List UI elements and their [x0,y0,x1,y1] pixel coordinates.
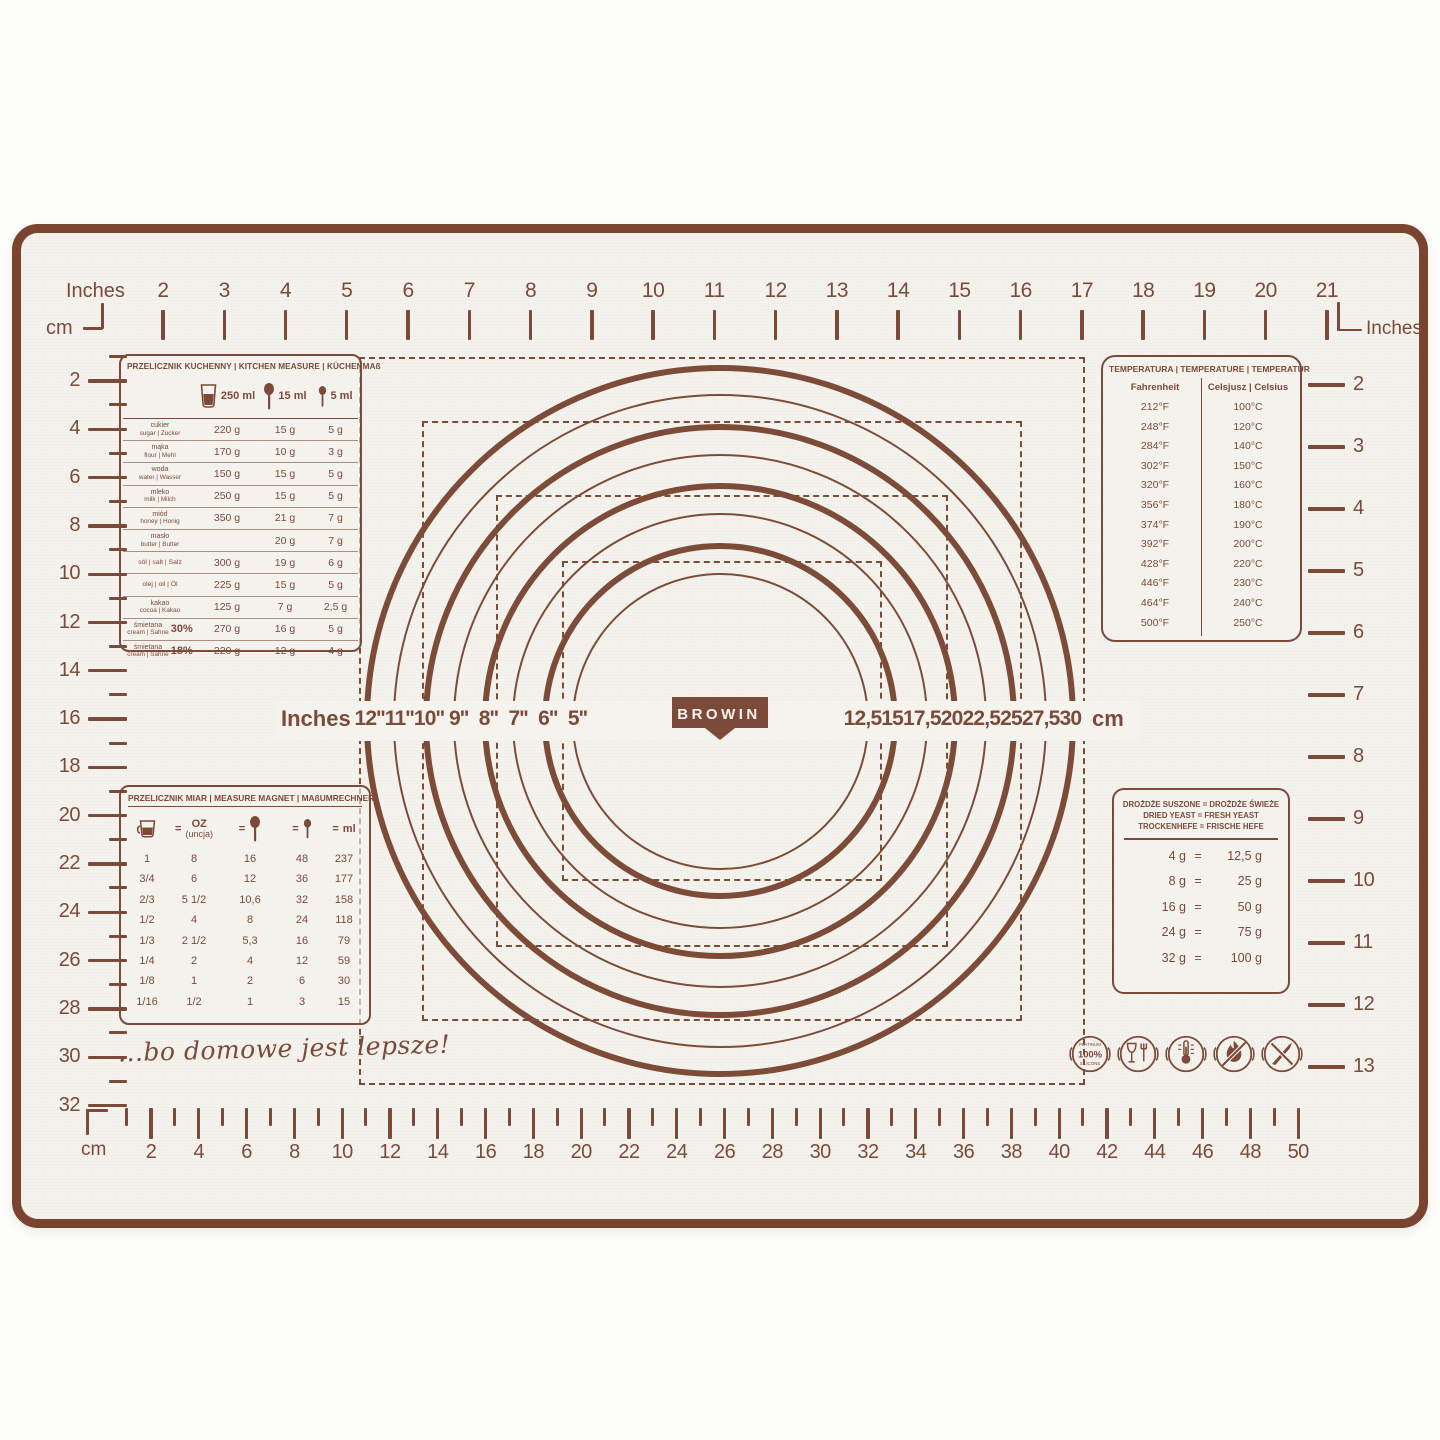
measuring-cup-icon [199,383,218,409]
ruler-tick [986,1108,989,1126]
ruler-tick [529,310,532,340]
no-cutting-icon [1260,1032,1304,1076]
ruler-tick [1201,1108,1204,1139]
ruler-number: 12 [754,279,798,303]
ruler-tick [125,1108,128,1126]
yeast-row: 24 g=75 g [1122,920,1280,946]
measure-value: 36 [278,869,326,889]
fahrenheit-value: 320°F [1109,476,1201,496]
celsius-value: 150°C [1202,457,1294,477]
ruler-tick [1308,507,1345,510]
ruler-tick [1308,817,1345,820]
right-ruler-inches-label: Inches [1366,318,1422,340]
name-line: miód [123,511,197,519]
platinum-text: PLATINUM [1079,1042,1101,1047]
ruler-number: 19 [1182,279,1226,303]
measure-value: 8 [166,849,222,869]
ruler-tick [1325,310,1328,340]
ruler-number: 12 [42,611,80,634]
ruler-tick [88,669,127,672]
ruler-tick [345,310,348,340]
circle-right-unit-label: cm [1092,706,1124,732]
measure-value: 2,5 g [313,601,358,613]
ruler-tick [109,886,127,889]
measure-value: 4 g [313,645,358,657]
ruler-number: 12 [368,1141,412,1164]
kitchen-row: śmietanacream | Sahne30%270 g16 g5 g [123,618,358,640]
ruler-number: 50 [1276,1141,1320,1164]
tablespoon-icon [249,816,261,842]
ruler-tick [293,1108,296,1139]
ruler-number: 4 [177,1141,221,1164]
fahrenheit-value: 212°F [1109,398,1201,418]
ruler-number: 10 [42,562,80,585]
measure-value: 3 g [313,446,358,458]
measure-value: 5 g [313,468,358,480]
fahrenheit-value: 248°F [1109,418,1201,438]
ruler-number: 44 [1133,1141,1177,1164]
ruler-number: 34 [894,1141,938,1164]
ruler-tick [284,310,287,340]
ruler-tick [109,452,127,455]
fahrenheit-value: 464°F [1109,594,1201,614]
ruler-tick [88,1104,127,1107]
measure-value: 79 [326,931,362,951]
measure-value: 5,3 [222,931,278,951]
measure-value: 2 1/2 [166,931,222,951]
yeast-row: 16 g=50 g [1122,895,1280,921]
ruler-number: 46 [1181,1141,1225,1164]
ruler-number: 28 [750,1141,794,1164]
ruler-tick [161,310,164,340]
ruler-number: 24 [655,1141,699,1164]
ingredient-name-lines: śmietanacream | Sahne [127,644,168,659]
circle-inch-label: 5'' [546,707,610,731]
ruler-tick [914,1108,917,1139]
ruler-tick [1129,1108,1132,1126]
ruler-number: 8 [509,279,553,303]
ruler-tick [364,1108,367,1126]
celsius-column: Celsjusz | Celsius 100°C120°C140°C150°C1… [1202,378,1294,636]
yeast-conversion-table: DROŻDŻE SUSZONE = DROŻDŻE ŚWIEŻE DRIED Y… [1112,788,1290,994]
ruler-tick [109,597,127,600]
ruler-tick [109,693,127,696]
ruler-tick [1308,755,1345,758]
ruler-tick [896,310,899,340]
measure-value: 7 g [313,535,358,547]
ruler-tick [109,838,127,841]
ruler-tick [1081,1108,1084,1126]
measure-value: 2 [222,971,278,991]
measure-value: 15 g [257,468,313,480]
name-line: kakao [123,600,197,608]
measure-value: 5 g [313,623,358,635]
measure-value: 7 g [257,601,313,613]
ruler-tick [88,862,127,865]
ruler-number: 42 [1085,1141,1129,1164]
kitchen-row: wodawater | Wasser150 g15 g5 g [123,462,358,484]
name-line: milk | Milch [123,496,197,504]
ruler-tick [109,983,127,986]
measure-value: 48 [278,849,326,869]
ruler-number: 5 [1353,559,1364,582]
flame-resistant-icon [1212,1032,1256,1076]
ruler-number: 2 [129,1141,173,1164]
name-line: cukier [123,422,197,430]
ruler-tick [1308,693,1345,696]
ruler-tick [88,911,127,914]
yeast-title-en: DRIED YEAST = FRESH YEAST [1122,810,1280,821]
ingredient-name: kakaococoa | Kakao [123,600,197,615]
ruler-number: 14 [416,1141,460,1164]
celsius-value: 230°C [1202,574,1294,594]
measure-value: 250 g [197,490,257,502]
ruler-tick [1273,1108,1276,1126]
name-line: cocoa | Kakao [123,607,197,615]
kitchen-measure-table: PRZELICZNIK KUCHENNY | KITCHEN MEASURE |… [119,354,362,652]
ruler-tick [774,310,777,340]
ruler-number: 8 [42,514,80,537]
ruler-tick [88,573,127,576]
ruler-tick [317,1108,320,1126]
name-line: śmietana [127,622,168,630]
ruler-tick [406,310,409,340]
ruler-tick [88,428,127,431]
ruler-tick [1153,1108,1156,1139]
measure-value: 1/2 [166,992,222,1012]
ruler-tick [1308,941,1345,944]
browin-logo-text: BROWIN [677,706,761,723]
yeast-row: 8 g=25 g [1122,869,1280,895]
ruler-tick [532,1108,535,1139]
measure-value: 20 g [257,535,313,547]
measure-value: 2 [166,951,222,971]
celsius-value: 220°C [1202,555,1294,575]
measure-value: 16 [222,849,278,869]
ruler-tick [1105,1108,1108,1139]
ingredient-name: cukiersugar | Zucker [123,422,197,437]
ruler-tick [1249,1108,1252,1139]
measure-value: 1/2 [128,910,166,930]
ruler-tick [866,1108,869,1139]
name-line: flour | Mehl [123,452,197,460]
name-line: butter | Butter [123,541,197,549]
ruler-number: 10 [1353,869,1374,892]
ruler-tick [1308,1003,1345,1006]
fahrenheit-value: 446°F [1109,574,1201,594]
equals-sign: = [1186,895,1210,921]
ruler-tick [1010,1108,1013,1139]
measure-value: 12 [278,951,326,971]
ruler-number: 24 [42,900,80,923]
measure-value: 30 [326,971,362,991]
measure-magnet-table: PRZELICZNIK MIAR | MEASURE MAGNET | MAßU… [119,785,371,1025]
name-line: woda [123,466,197,474]
kitchen-col-15ml: 15 ml [278,390,306,402]
name-line: cream | Sahne [127,651,168,659]
measure-value: 7 g [313,512,358,524]
ruler-tick [1308,631,1345,634]
ruler-tick [819,1108,822,1139]
ruler-tick [1141,310,1144,340]
uncja-label: (uncja) [185,829,213,839]
corner-line [86,1109,108,1112]
teaspoon-icon [318,386,327,407]
measure-value: 118 [326,910,362,930]
kitchen-row: sól | salt | Salz300 g19 g6 g [123,551,358,573]
ingredient-name: miódhoney | Honig [123,511,197,526]
measure-value: 5 g [313,579,358,591]
name-line: sugar | Zucker [123,430,197,438]
measure-value: 24 [278,910,326,930]
ruler-tick [651,310,654,340]
ruler-tick [603,1108,606,1126]
ingredient-name: śmietanacream | Sahne18% [123,644,197,659]
measuring-cup-icon [135,819,159,839]
measure-value: 15 g [257,490,313,502]
fahrenheit-value: 356°F [1109,496,1201,516]
measure-value: 6 g [313,557,358,569]
name-line: mąka [123,444,197,452]
equals-sign: = [1186,920,1210,946]
ruler-tick [468,310,471,340]
ruler-number: 11 [1353,931,1373,954]
ruler-tick [88,766,127,769]
ruler-tick [388,1108,391,1139]
ruler-tick [1308,879,1345,882]
measure-value: 1 [166,971,222,991]
tablespoon-icon [263,383,275,410]
ingredient-name: masłobutter | Butter [123,533,197,548]
ruler-tick [223,310,226,340]
measure-value: 2/3 [128,890,166,910]
dried-yeast-value: 4 g [1140,844,1186,870]
equals-sign: = [1186,844,1210,870]
fahrenheit-column: Fahrenheit 212°F248°F284°F302°F320°F356°… [1109,378,1202,636]
top-ruler-inches-label: Inches [66,280,125,303]
ruler-number: 14 [42,659,80,682]
measure-value: 15 g [257,424,313,436]
fresh-yeast-value: 75 g [1210,920,1262,946]
ingredient-name: olej | oil | Öl [123,581,197,589]
fresh-yeast-value: 25 g [1210,869,1262,895]
ruler-tick [88,814,127,817]
kitchen-row: cukiersugar | Zucker220 g15 g5 g [123,418,358,440]
ruler-number: 6 [225,1141,269,1164]
celsius-value: 200°C [1202,535,1294,555]
ruler-tick [109,1031,127,1034]
measure-value: 3 [278,992,326,1012]
yeast-row: 32 g=100 g [1122,946,1280,972]
ruler-number: 8 [1353,745,1364,768]
measure-value: 10 g [257,446,313,458]
kitchen-row: mąkaflour | Mehl170 g10 g3 g [123,440,358,462]
kitchen-measure-header: 250 ml 15 ml 5 ml [123,374,358,418]
ruler-tick [88,1007,127,1010]
ruler-tick [88,1056,127,1059]
ruler-tick [88,717,127,720]
name-line: honey | Honig [123,518,197,526]
ruler-tick [412,1108,415,1126]
measure-value: 6 [166,869,222,889]
ruler-number: 22 [42,852,80,875]
fahrenheit-value: 284°F [1109,437,1201,457]
ruler-tick [713,310,716,340]
ruler-tick [890,1108,893,1126]
measure-value: 4 [222,951,278,971]
ruler-number: 16 [42,707,80,730]
corner-line [83,327,103,330]
circle-cm-label: 12,5 [831,707,895,731]
ruler-number: 40 [1037,1141,1081,1164]
ruler-tick [771,1108,774,1139]
percent-text: 100% [1078,1049,1103,1060]
ruler-tick [109,500,127,503]
ruler-number: 38 [989,1141,1033,1164]
ruler-number: 12 [1353,993,1374,1016]
ruler-tick [109,355,127,358]
corner-line [86,1109,89,1135]
ruler-number: 13 [815,279,859,303]
celsius-value: 190°C [1202,516,1294,536]
equals-sign: = [175,823,181,835]
ingredient-name: sól | salt | Salz [123,559,197,567]
ruler-tick [221,1108,224,1126]
measure-value: 350 g [197,512,257,524]
ruler-tick [590,310,593,340]
bottom-ruler-cm-label: cm [81,1139,106,1161]
ruler-tick [1225,1108,1228,1126]
food-contact-safe-icon [1116,1032,1160,1076]
ruler-number: 8 [272,1141,316,1164]
kitchen-measure-rows: cukiersugar | Zucker220 g15 g5 gmąkaflou… [123,418,358,662]
ruler-number: 4 [1353,497,1364,520]
ruler-tick [109,790,127,793]
fahrenheit-value: 428°F [1109,555,1201,575]
ruler-number: 11 [692,279,736,303]
measure-value: 225 g [197,579,257,591]
fahrenheit-value: 374°F [1109,516,1201,536]
ruler-number: 15 [937,279,981,303]
ruler-tick [508,1108,511,1126]
ruler-number: 6 [1353,621,1364,644]
measure-value: 6 [278,971,326,991]
temperature-range-icon [1164,1032,1208,1076]
ruler-tick [1058,1108,1061,1139]
measure-value: 220 g [197,645,257,657]
ruler-tick [1080,310,1083,340]
ruler-number: 20 [559,1141,603,1164]
ruler-tick [1308,445,1345,448]
corner-line [1337,329,1362,332]
ruler-tick [627,1108,630,1139]
ml-label: ml [343,823,356,835]
ruler-tick [88,621,127,624]
measure-value: 125 g [197,601,257,613]
ingredient-percent: 30% [171,623,193,635]
dried-yeast-value: 16 g [1140,895,1186,921]
ruler-number: 20 [1244,279,1288,303]
kitchen-row: masłobutter | Butter20 g7 g [123,529,358,551]
measure-value: 150 g [197,468,257,480]
measure-value: 4 [166,910,222,930]
kitchen-row: miódhoney | Honig350 g21 g7 g [123,507,358,529]
ruler-number: 13 [1353,1055,1374,1078]
ruler-number: 9 [570,279,614,303]
ruler-tick [962,1108,965,1139]
ruler-number: 5 [325,279,369,303]
ruler-tick [1203,310,1206,340]
kitchen-row: mlekomilk | Milch250 g15 g5 g [123,485,358,507]
name-line: śmietana [127,644,168,652]
name-line: masło [123,533,197,541]
ruler-number: 26 [42,949,80,972]
yeast-rows: 4 g=12,5 g8 g=25 g16 g=50 g24 g=75 g32 g… [1122,844,1280,972]
kitchen-row: olej | oil | Öl225 g15 g5 g [123,573,358,595]
ruler-number: 4 [264,279,308,303]
fresh-yeast-value: 100 g [1210,946,1262,972]
measure-value: 16 g [257,623,313,635]
measure-value: 158 [326,890,362,910]
ruler-number: 16 [999,279,1043,303]
ruler-tick [88,959,127,962]
kitchen-col-250ml: 250 ml [221,390,255,402]
ruler-number: 32 [846,1141,890,1164]
fahrenheit-value: 392°F [1109,535,1201,555]
name-line: mleko [123,489,197,497]
ruler-number: 21 [1305,279,1349,303]
ruler-tick [109,935,127,938]
kitchen-measure-title: PRZELICZNIK KUCHENNY | KITCHEN MEASURE |… [127,362,354,371]
ruler-tick [795,1108,798,1126]
measure-value: 3/4 [128,869,166,889]
equals-sign: = [292,823,298,835]
corner-line [1337,302,1340,331]
ingredient-name: wodawater | Wasser [123,466,197,481]
ingredient-name: mąkaflour | Mehl [123,444,197,459]
ruler-number: 32 [42,1094,80,1117]
measure-value: 1/16 [128,992,166,1012]
ingredient-percent: 18% [171,645,193,657]
fresh-yeast-value: 50 g [1210,895,1262,921]
temperature-title: TEMPERATURA | TEMPERATURE | TEMPERATUR [1109,364,1294,374]
ruler-tick [1297,1108,1300,1139]
ruler-tick [109,403,127,406]
ruler-tick [556,1108,559,1126]
platinum-100-silicone-badge: PLATINUM 100% SILICONE [1068,1032,1112,1076]
dried-yeast-value: 32 g [1140,946,1186,972]
ruler-tick [269,1108,272,1126]
ruler-tick [109,742,127,745]
ruler-number: 9 [1353,807,1364,830]
celsius-value: 250°C [1202,614,1294,634]
kitchen-row: śmietanacream | Sahne18%220 g12 g4 g [123,640,358,662]
dried-yeast-value: 24 g [1140,920,1186,946]
fahrenheit-header: Fahrenheit [1109,378,1201,398]
celsius-value: 180°C [1202,496,1294,516]
circle-left-unit-label: Inches [281,706,351,732]
celsius-value: 100°C [1202,398,1294,418]
ruler-number: 6 [42,466,80,489]
ruler-tick [1264,310,1267,340]
measure-value: 8 [222,910,278,930]
measure-value: 10,6 [222,890,278,910]
care-badges: PLATINUM 100% SILICONE [1068,1032,1304,1076]
yeast-row: 4 g=12,5 g [1122,844,1280,870]
measure-value: 5 1/2 [166,890,222,910]
ruler-tick [109,548,127,551]
ruler-number: 18 [42,755,80,778]
